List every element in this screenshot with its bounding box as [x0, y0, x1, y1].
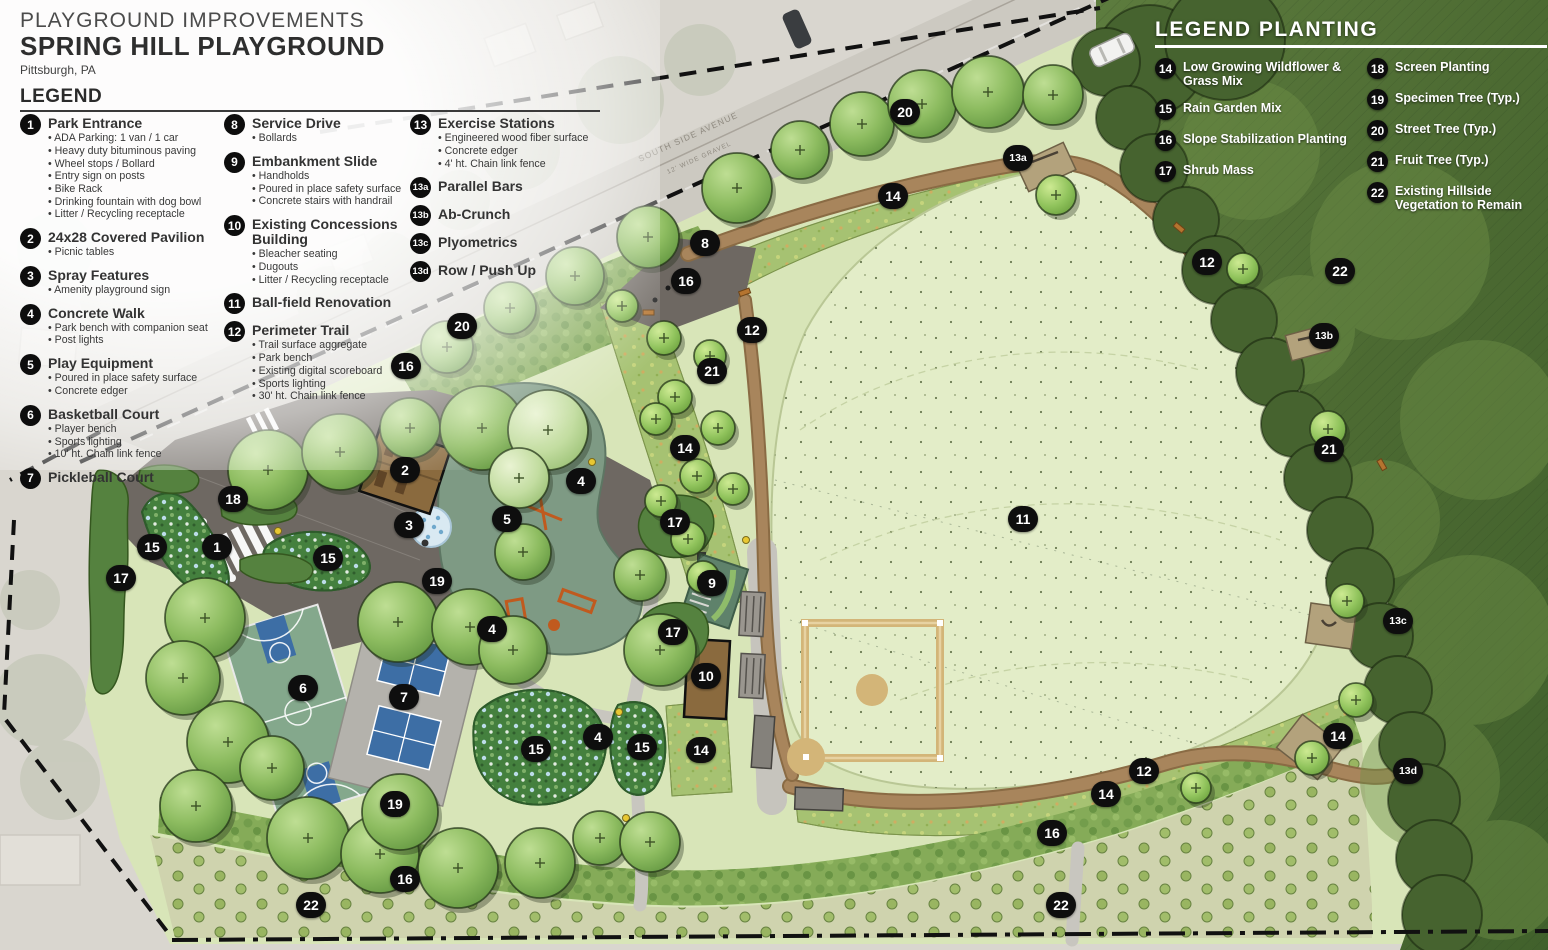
- map-marker-17: 17: [660, 509, 690, 535]
- legend-item-number: 9: [224, 152, 245, 173]
- map-marker-17: 17: [106, 565, 136, 591]
- planting-item-label: Specimen Tree (Typ.): [1395, 91, 1520, 110]
- legend-item-bullet: Post lights: [48, 334, 208, 347]
- legend-item-10: 10Existing Concessions BuildingBleacher …: [224, 215, 412, 286]
- legend-item-label: Pickleball Court: [48, 470, 154, 485]
- map-marker-15: 15: [313, 545, 343, 571]
- legend-item-bullet: Trail surface aggregate: [252, 339, 382, 352]
- legend-item-bullet: Concrete edger: [48, 385, 197, 398]
- map-marker-9: 9: [697, 570, 727, 596]
- legend-item-number: 1: [20, 114, 41, 135]
- planting-legend: LEGEND PLANTING 14Low Growing Wildflower…: [1155, 18, 1547, 223]
- legend-item-label: Park Entrance: [48, 116, 201, 131]
- map-marker-13d: 13d: [1393, 758, 1423, 784]
- planting-legend-heading: LEGEND PLANTING: [1155, 18, 1547, 48]
- legend-item-bullet: Engineered wood fiber surface: [438, 132, 588, 145]
- map-marker-13a: 13a: [1003, 145, 1033, 171]
- map-marker-16: 16: [1037, 820, 1067, 846]
- legend-item-9: 9Embankment SlideHandholdsPoured in plac…: [224, 152, 412, 208]
- legend-item-bullet: 30' ht. Chain link fence: [252, 390, 382, 403]
- legend-item-bullet: Handholds: [252, 170, 401, 183]
- map-marker-11: 11: [1008, 506, 1038, 532]
- legend-item-7: 7Pickleball Court: [20, 468, 228, 489]
- legend-item-label: Exercise Stations: [438, 116, 588, 131]
- legend-item-label: Ball-field Renovation: [252, 295, 391, 310]
- legend-item-label: Concrete Walk: [48, 306, 208, 321]
- planting-item-label: Street Tree (Typ.): [1395, 122, 1496, 141]
- legend-item-number: 3: [20, 266, 41, 287]
- legend-item-number: 6: [20, 405, 41, 426]
- map-marker-12: 12: [737, 317, 767, 343]
- planting-item-label: Low Growing Wildflower & Grass Mix: [1183, 60, 1361, 89]
- legend-item-number: 10: [224, 215, 245, 236]
- map-marker-12: 12: [1129, 758, 1159, 784]
- planting-item-label: Existing Hillside Vegetation to Remain: [1395, 184, 1545, 213]
- planting-item-number: 15: [1155, 99, 1176, 120]
- map-marker-20: 20: [447, 313, 477, 339]
- legend-item-bullet: Amenity playground sign: [48, 284, 170, 297]
- map-marker-22: 22: [1325, 258, 1355, 284]
- legend-item-4: 4Concrete WalkPark bench with companion …: [20, 304, 228, 348]
- legend-item-bullet: Sports lighting: [48, 436, 162, 449]
- map-marker-10: 10: [691, 663, 721, 689]
- map-marker-14: 14: [1091, 781, 1121, 807]
- map-marker-14: 14: [686, 737, 716, 763]
- map-marker-16: 16: [390, 866, 420, 892]
- map-marker-19: 19: [422, 568, 452, 594]
- planting-item-number: 14: [1155, 58, 1176, 79]
- map-marker-4: 4: [566, 468, 596, 494]
- planting-item-14: 14Low Growing Wildflower & Grass Mix: [1155, 58, 1361, 89]
- legend-item-number: 13c: [410, 233, 431, 254]
- map-marker-2: 2: [390, 457, 420, 483]
- legend-heading: LEGEND: [20, 86, 600, 112]
- planting-item-number: 17: [1155, 161, 1176, 182]
- legend-column-1: 1Park EntranceADA Parking: 1 van / 1 car…: [20, 114, 228, 496]
- legend-item-label: Play Equipment: [48, 356, 197, 371]
- legend-item-bullet: Concrete stairs with handrail: [252, 195, 401, 208]
- map-marker-14: 14: [1323, 723, 1353, 749]
- site-plan-sheet: SOUTH SIDE AVENUE 12' WIDE GRAVEL 2013a1…: [0, 0, 1548, 950]
- map-marker-4: 4: [583, 724, 613, 750]
- planting-item-label: Screen Planting: [1395, 60, 1489, 79]
- map-marker-15: 15: [521, 736, 551, 762]
- map-marker-13b: 13b: [1309, 323, 1339, 349]
- legend-item-bullet: Poured in place safety surface: [252, 183, 401, 196]
- legend-item-13d: 13dRow / Push Up: [410, 261, 610, 282]
- planting-legend-columns: 14Low Growing Wildflower & Grass Mix15Ra…: [1155, 58, 1547, 223]
- legend-item-bullet: Bike Rack: [48, 183, 201, 196]
- sheet-subtitle: Pittsburgh, PA: [20, 63, 385, 77]
- planting-item-label: Fruit Tree (Typ.): [1395, 153, 1489, 172]
- legend-item-number: 5: [20, 354, 41, 375]
- planting-item-22: 22Existing Hillside Vegetation to Remain: [1367, 182, 1545, 213]
- legend-item-label: Parallel Bars: [438, 179, 523, 194]
- legend-item-label: 24x28 Covered Pavilion: [48, 230, 204, 245]
- legend-item-label: Embankment Slide: [252, 154, 401, 169]
- legend-item-bullet: Picnic tables: [48, 246, 204, 259]
- legend-item-number: 13a: [410, 177, 431, 198]
- legend-item-label: Service Drive: [252, 116, 341, 131]
- legend-item-1: 1Park EntranceADA Parking: 1 van / 1 car…: [20, 114, 228, 221]
- legend-item-bullet: ADA Parking: 1 van / 1 car: [48, 132, 201, 145]
- map-marker-4: 4: [477, 616, 507, 642]
- legend-item-8: 8Service DriveBollards: [224, 114, 412, 145]
- legend-item-11: 11Ball-field Renovation: [224, 293, 412, 314]
- legend-item-number: 13d: [410, 261, 431, 282]
- legend-column-2: 8Service DriveBollards9Embankment SlideH…: [224, 114, 412, 410]
- legend-item-bullet: Entry sign on posts: [48, 170, 201, 183]
- planting-item-19: 19Specimen Tree (Typ.): [1367, 89, 1545, 110]
- legend-item-13c: 13cPlyometrics: [410, 233, 610, 254]
- legend-item-label: Ab-Crunch: [438, 207, 510, 222]
- map-marker-8: 8: [690, 230, 720, 256]
- map-marker-5: 5: [492, 506, 522, 532]
- legend-item-number: 13: [410, 114, 431, 135]
- legend-item-number: 11: [224, 293, 245, 314]
- legend-item-bullet: 10' ht. Chain link fence: [48, 448, 162, 461]
- legend-item-13b: 13bAb-Crunch: [410, 205, 610, 226]
- legend-item-label: Spray Features: [48, 268, 170, 283]
- planting-item-20: 20Street Tree (Typ.): [1367, 120, 1545, 141]
- legend-item-bullet: Existing digital scoreboard: [252, 365, 382, 378]
- planting-item-label: Shrub Mass: [1183, 163, 1254, 182]
- legend-item-number: 7: [20, 468, 41, 489]
- planting-item-16: 16Slope Stabilization Planting: [1155, 130, 1361, 151]
- legend-item-6: 6Basketball CourtPlayer benchSports ligh…: [20, 405, 228, 461]
- legend-item-bullet: Bleacher seating: [252, 248, 412, 261]
- legend-item-number: 8: [224, 114, 245, 135]
- map-marker-22: 22: [296, 892, 326, 918]
- legend-item-label: Perimeter Trail: [252, 323, 382, 338]
- title-block: PLAYGROUND IMPROVEMENTS SPRING HILL PLAY…: [20, 10, 385, 77]
- legend-item-label: Existing Concessions Building: [252, 217, 412, 247]
- legend-item-3: 3Spray FeaturesAmenity playground sign: [20, 266, 228, 297]
- sheet-title: SPRING HILL PLAYGROUND: [20, 32, 385, 61]
- planting-item-number: 16: [1155, 130, 1176, 151]
- legend-item-13: 13Exercise StationsEngineered wood fiber…: [410, 114, 610, 170]
- map-marker-1: 1: [202, 534, 232, 560]
- planting-item-number: 19: [1367, 89, 1388, 110]
- planting-item-label: Slope Stabilization Planting: [1183, 132, 1347, 151]
- map-marker-14: 14: [670, 435, 700, 461]
- planting-item-number: 20: [1367, 120, 1388, 141]
- legend-item-label: Row / Push Up: [438, 263, 536, 278]
- planting-item-21: 21Fruit Tree (Typ.): [1367, 151, 1545, 172]
- legend-item-number: 2: [20, 228, 41, 249]
- planting-item-17: 17Shrub Mass: [1155, 161, 1361, 182]
- legend-item-bullet: Heavy duty bituminous paving: [48, 145, 201, 158]
- map-marker-12: 12: [1192, 249, 1222, 275]
- legend-item-bullet: Park bench with companion seat: [48, 322, 208, 335]
- legend-item-bullet: Bollards: [252, 132, 341, 145]
- planting-item-number: 21: [1367, 151, 1388, 172]
- map-marker-15: 15: [627, 734, 657, 760]
- legend-item-bullet: Sports lighting: [252, 378, 382, 391]
- map-marker-6: 6: [288, 675, 318, 701]
- planting-column-1: 14Low Growing Wildflower & Grass Mix15Ra…: [1155, 58, 1361, 223]
- map-marker-21: 21: [1314, 436, 1344, 462]
- map-marker-22: 22: [1046, 892, 1076, 918]
- map-marker-16: 16: [671, 268, 701, 294]
- legend-item-number: 13b: [410, 205, 431, 226]
- map-marker-19: 19: [380, 791, 410, 817]
- legend-column-3: 13Exercise StationsEngineered wood fiber…: [410, 114, 610, 289]
- legend-item-label: Basketball Court: [48, 407, 162, 422]
- legend-item-label: Plyometrics: [438, 235, 517, 250]
- legend-item-bullet: Park bench: [252, 352, 382, 365]
- legend-item-bullet: Wheel stops / Bollard: [48, 158, 201, 171]
- legend-item-bullet: Player bench: [48, 423, 162, 436]
- legend-item-bullet: 4' ht. Chain link fence: [438, 158, 588, 171]
- legend-item-bullet: Litter / Recycling receptacle: [252, 274, 412, 287]
- sheet-supertitle: PLAYGROUND IMPROVEMENTS: [20, 10, 385, 32]
- map-marker-15: 15: [137, 534, 167, 560]
- map-marker-21: 21: [697, 358, 727, 384]
- map-marker-13c: 13c: [1383, 608, 1413, 634]
- map-marker-7: 7: [389, 684, 419, 710]
- planting-item-number: 18: [1367, 58, 1388, 79]
- legend-item-bullet: Drinking fountain with dog bowl: [48, 196, 201, 209]
- legend-item-bullet: Litter / Recycling receptacle: [48, 208, 201, 221]
- map-marker-17: 17: [658, 619, 688, 645]
- legend-item-bullet: Poured in place safety surface: [48, 372, 197, 385]
- legend-item-number: 12: [224, 321, 245, 342]
- planting-item-15: 15Rain Garden Mix: [1155, 99, 1361, 120]
- legend-item-5: 5Play EquipmentPoured in place safety su…: [20, 354, 228, 398]
- legend-item-bullet: Dugouts: [252, 261, 412, 274]
- legend-item-12: 12Perimeter TrailTrail surface aggregate…: [224, 321, 412, 403]
- planting-item-18: 18Screen Planting: [1367, 58, 1545, 79]
- legend-item-2: 224x28 Covered PavilionPicnic tables: [20, 228, 228, 259]
- legend-item-bullet: Concrete edger: [438, 145, 588, 158]
- legend-item-13a: 13aParallel Bars: [410, 177, 610, 198]
- planting-item-label: Rain Garden Mix: [1183, 101, 1282, 120]
- planting-column-2: 18Screen Planting19Specimen Tree (Typ.)2…: [1367, 58, 1545, 223]
- planting-item-number: 22: [1367, 182, 1388, 203]
- legend-item-number: 4: [20, 304, 41, 325]
- map-marker-20: 20: [890, 99, 920, 125]
- map-marker-14: 14: [878, 183, 908, 209]
- map-marker-3: 3: [394, 512, 424, 538]
